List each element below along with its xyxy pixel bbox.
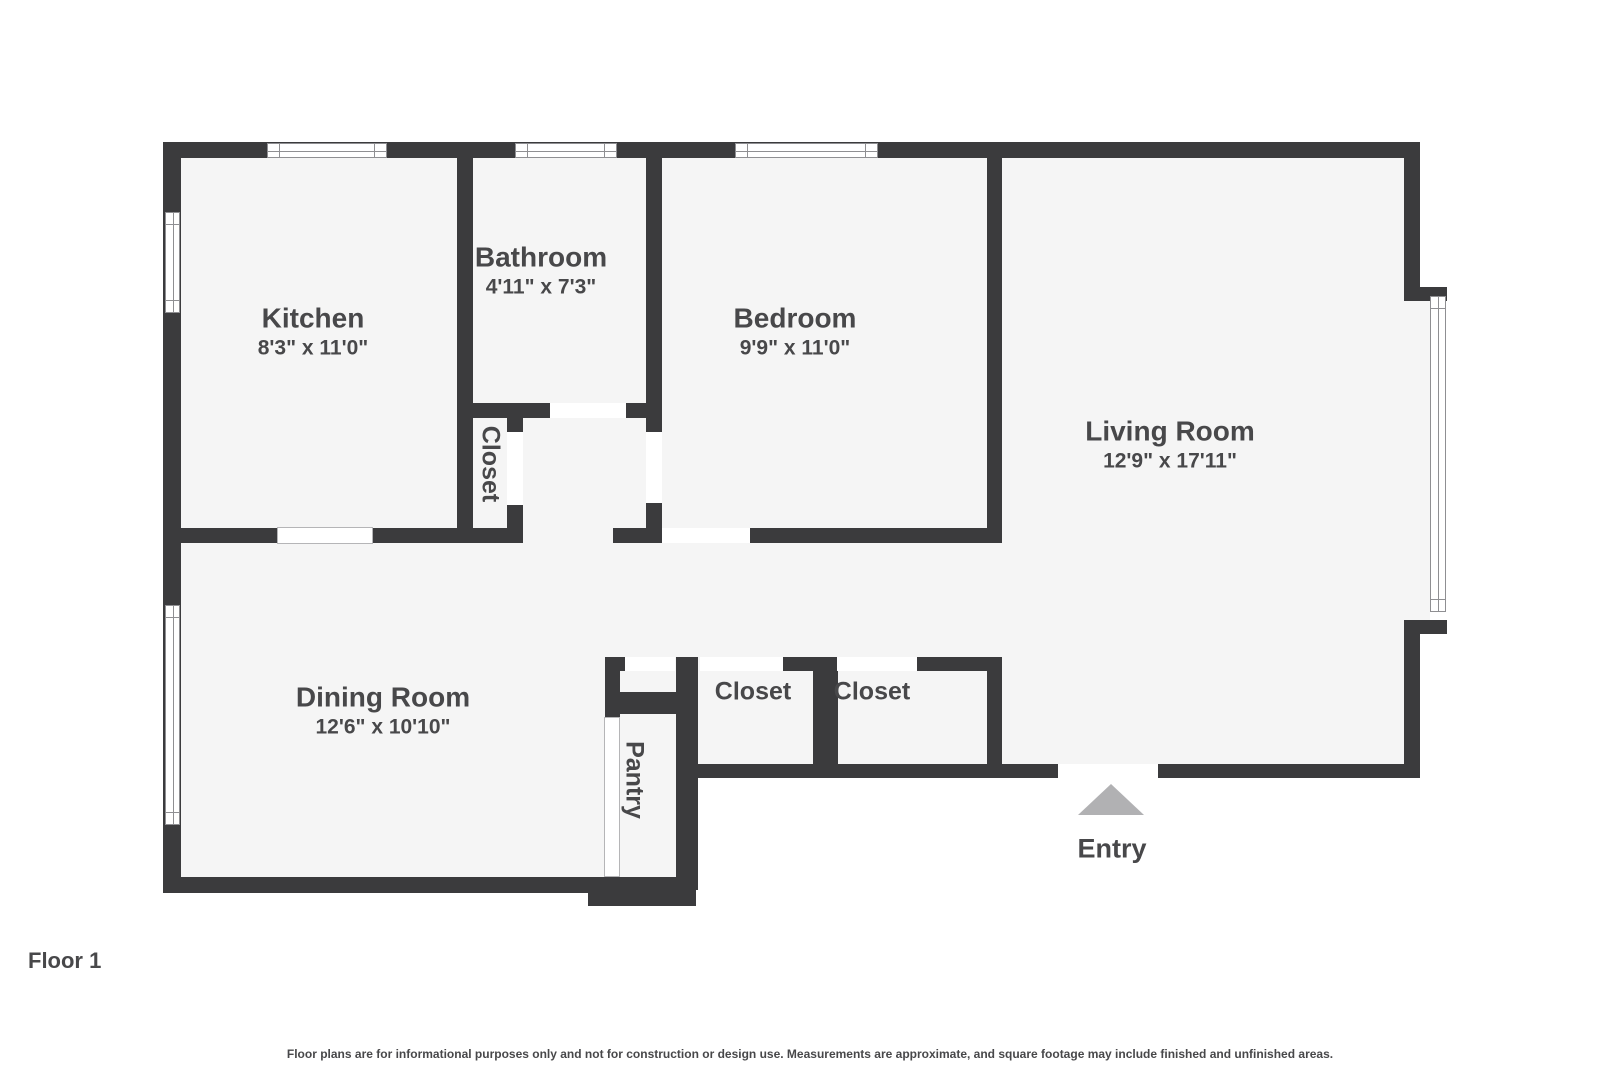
door-opening-closet1 — [700, 657, 783, 671]
wall — [613, 528, 662, 543]
floor-area-bay — [1404, 301, 1430, 620]
room-dimensions: 8'3" x 11'0" — [258, 334, 369, 361]
room-dimensions: 4'11" x 7'3" — [475, 273, 607, 300]
door-opening-closet2 — [837, 657, 917, 671]
wall — [163, 528, 277, 543]
room-name: Living Room — [1085, 415, 1255, 447]
door-opening-bedroom-west — [646, 432, 662, 503]
living-room-label: Living Room 12'9" x 17'11" — [1085, 415, 1255, 474]
window — [165, 212, 180, 313]
wall — [605, 657, 620, 717]
door-opening-closet — [507, 432, 523, 505]
pantry-label-rotated: Pantry — [620, 741, 649, 819]
door-opening-nook — [625, 657, 675, 671]
wall — [813, 657, 838, 764]
wall — [457, 158, 473, 528]
wall — [1404, 142, 1420, 301]
wall — [607, 692, 698, 714]
entry-arrow-icon — [1078, 784, 1144, 815]
wall — [1404, 620, 1420, 778]
door-opening-bathroom — [550, 403, 626, 418]
wall — [987, 158, 1002, 543]
door-opening-bedroom-south — [662, 528, 750, 543]
dining-room-label: Dining Room 12'6" x 10'10" — [296, 681, 470, 740]
floorplan-canvas: Kitchen 8'3" x 11'0" Bathroom 4'11" x 7'… — [0, 0, 1620, 1080]
opening-kitchen-pass — [277, 527, 373, 544]
wall — [750, 528, 1002, 543]
opening-pantry-west — [604, 717, 620, 877]
wall — [507, 418, 523, 432]
room-dimensions: 12'6" x 10'10" — [296, 713, 470, 740]
window — [735, 143, 878, 158]
window-bay — [1430, 296, 1446, 612]
entry-label: Entry — [1077, 834, 1146, 865]
wall — [588, 890, 696, 906]
wall — [987, 657, 1002, 778]
window — [267, 143, 387, 158]
wall — [457, 403, 550, 418]
closet2-label: Closet — [834, 678, 910, 707]
wall — [373, 528, 523, 543]
room-name: Dining Room — [296, 681, 470, 713]
room-dimensions: 12'9" x 17'11" — [1085, 447, 1255, 474]
bedroom-label: Bedroom 9'9" x 11'0" — [734, 302, 857, 361]
window — [165, 605, 180, 825]
room-name: Kitchen — [258, 302, 369, 334]
floor-title: Floor 1 — [28, 948, 101, 974]
wall — [1158, 764, 1420, 778]
window — [515, 143, 617, 158]
door-opening-entry — [1058, 764, 1158, 778]
room-name: Bedroom — [734, 302, 857, 334]
disclaimer: Floor plans are for informational purpos… — [0, 1047, 1620, 1061]
bathroom-label: Bathroom 4'11" x 7'3" — [475, 241, 607, 300]
closet1-label: Closet — [715, 678, 791, 707]
wall — [917, 657, 1002, 671]
closet-label-rotated: Closet — [476, 426, 505, 502]
room-dimensions: 9'9" x 11'0" — [734, 334, 857, 361]
kitchen-label: Kitchen 8'3" x 11'0" — [258, 302, 369, 361]
room-name: Bathroom — [475, 241, 607, 273]
wall — [646, 158, 662, 432]
